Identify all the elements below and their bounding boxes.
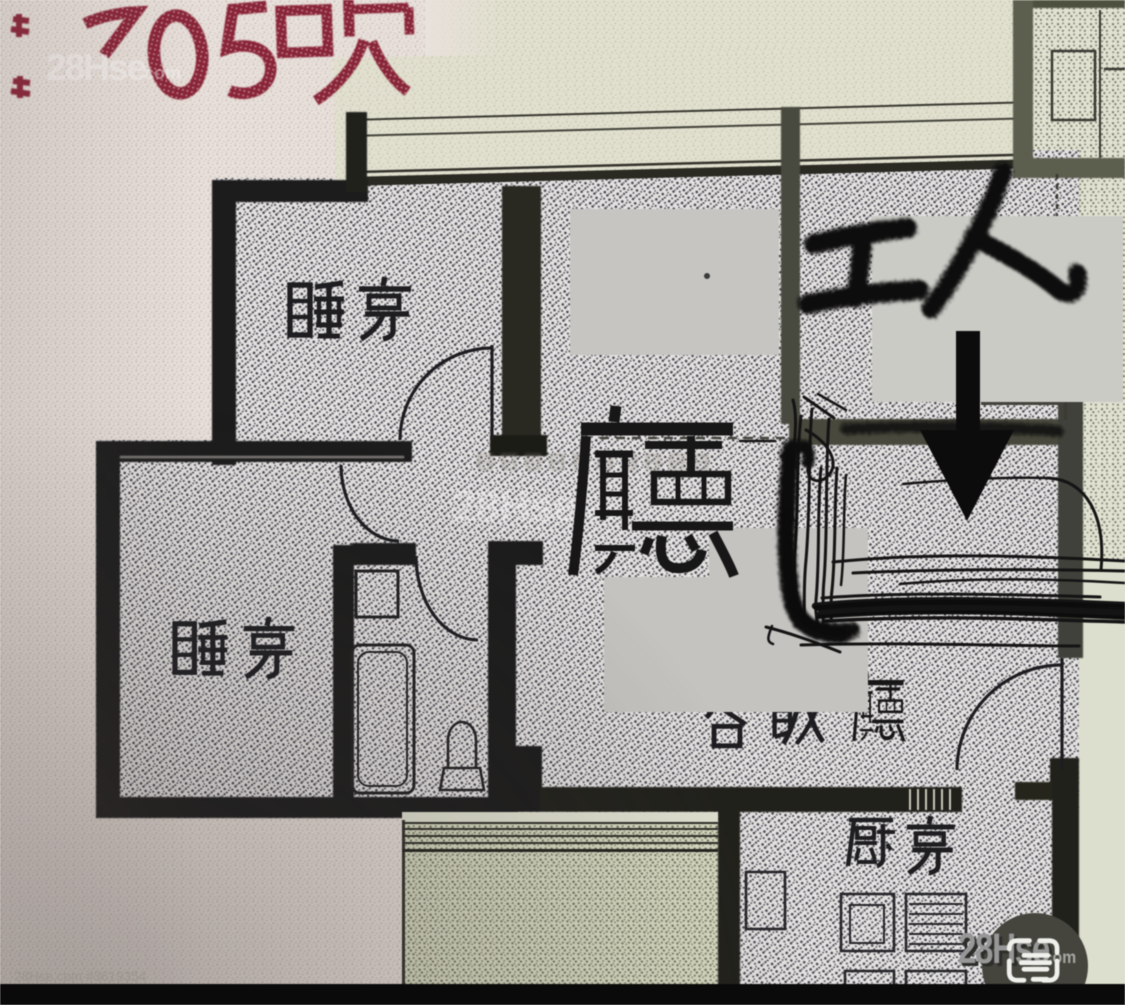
svg-text:28Hse.com #3619354: 28Hse.com #3619354 — [14, 969, 147, 984]
svg-text:28Hse: 28Hse — [958, 925, 1050, 973]
